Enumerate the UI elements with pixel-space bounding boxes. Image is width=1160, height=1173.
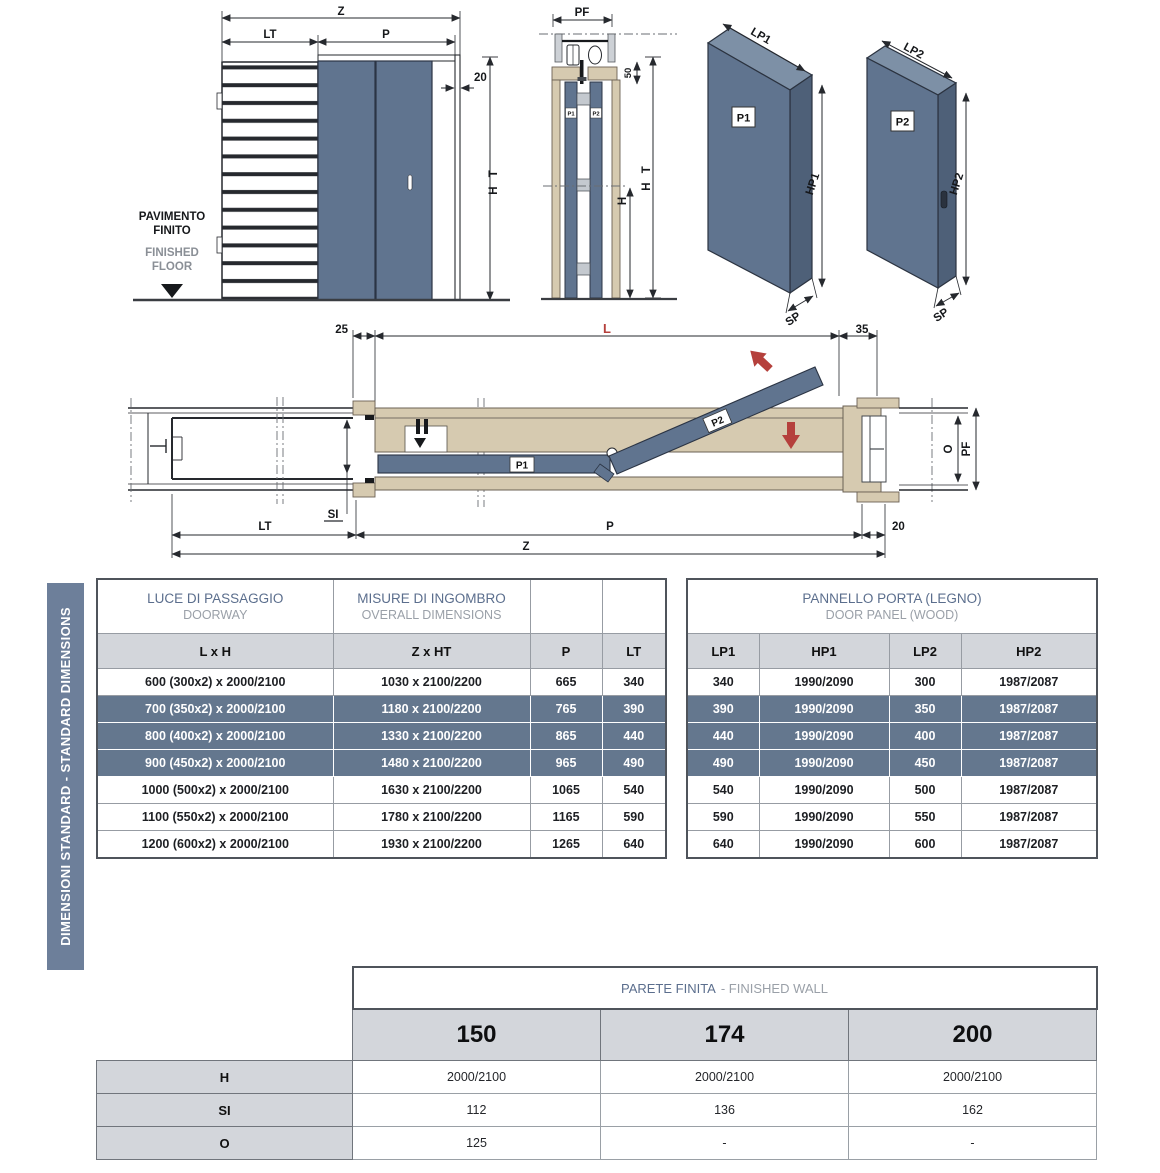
floor-level-marker xyxy=(161,284,183,298)
cell: 1000 (500x2) x 2000/2100 xyxy=(97,777,333,804)
wall-title-en: - FINISHED WALL xyxy=(721,981,828,996)
cell: 1180 x 2100/2200 xyxy=(333,696,530,723)
section-view-drawing: PF 50 P1 P2 H H T xyxy=(535,5,690,307)
dim-label-pf: PF xyxy=(961,442,973,457)
dim-label-h: H xyxy=(617,197,629,205)
dim-label-ht: H T xyxy=(488,167,500,195)
dim-line-sp xyxy=(788,296,813,311)
cell: 1990/2090 xyxy=(759,669,889,696)
panel-p1-plan xyxy=(378,455,610,473)
wall-col-header: 150 xyxy=(353,1009,601,1061)
doorway-table: LUCE DI PASSAGGIO DOORWAY MISURE DI INGO… xyxy=(96,578,667,859)
door-panel-left xyxy=(318,61,375,300)
wall-col-header: 200 xyxy=(849,1009,1097,1061)
panel-handle xyxy=(941,191,947,208)
extension-line xyxy=(812,278,817,298)
table-row: 5901990/20905501987/2087 xyxy=(687,804,1097,831)
cell: 1330 x 2100/2200 xyxy=(333,723,530,750)
door-panel-right xyxy=(376,61,432,300)
hinge xyxy=(577,263,590,275)
cell: 540 xyxy=(602,777,666,804)
wall-table-title: PARETE FINITA- FINISHED WALL xyxy=(353,967,1097,1009)
cell: 1065 xyxy=(530,777,602,804)
cell: 490 xyxy=(602,750,666,777)
panel1-tag-label: P1 xyxy=(567,112,575,118)
table-row: 800 (400x2) x 2000/21001330 x 2100/22008… xyxy=(97,723,666,750)
table-row: 5401990/20905001987/2087 xyxy=(687,777,1097,804)
extension-line xyxy=(956,276,961,295)
cassette-end-cap xyxy=(353,401,375,415)
group-title-it: LUCE DI PASSAGGIO xyxy=(98,590,333,607)
cell: 600 (300x2) x 2000/2100 xyxy=(97,669,333,696)
panel-p2-drawing: P2 LP2 HP2 SP xyxy=(855,25,1015,325)
table-row: 1100 (550x2) x 2000/21001780 x 2100/2200… xyxy=(97,804,666,831)
wall-title-it: PARETE FINITA xyxy=(621,981,716,996)
cell: 900 (450x2) x 2000/2100 xyxy=(97,750,333,777)
cell: 640 xyxy=(602,831,666,859)
dim-label-lt: LT xyxy=(258,521,271,533)
overall-group-header: MISURE DI INGOMBRO OVERALL DIMENSIONS xyxy=(333,579,530,634)
panel-p1-tag-label: P1 xyxy=(516,461,529,472)
cell: 1630 x 2100/2200 xyxy=(333,777,530,804)
cell: 340 xyxy=(687,669,759,696)
group-title-en: DOORWAY xyxy=(98,607,333,623)
cell: 450 xyxy=(889,750,961,777)
cassette-end-cap xyxy=(353,483,375,497)
track-pin xyxy=(416,419,420,434)
panel-label: P1 xyxy=(737,113,750,125)
cell: 1987/2087 xyxy=(961,723,1097,750)
panel2-tag-label: P2 xyxy=(592,112,599,118)
rough-wall xyxy=(608,34,615,62)
table-row: 900 (450x2) x 2000/21001480 x 2100/22009… xyxy=(97,750,666,777)
arrow-open-icon xyxy=(744,344,776,376)
cap-hook xyxy=(365,478,374,483)
rough-wall xyxy=(555,34,562,62)
table-row: 1000 (500x2) x 2000/21001630 x 2100/2200… xyxy=(97,777,666,804)
empty-header-cell xyxy=(602,579,666,634)
panel-front-face xyxy=(867,58,938,288)
cell: 1990/2090 xyxy=(759,777,889,804)
row-label: H xyxy=(97,1061,353,1094)
dim-label-20: 20 xyxy=(892,521,905,533)
col-header: L x H xyxy=(97,634,333,669)
top-track xyxy=(318,55,460,61)
cell: 590 xyxy=(602,804,666,831)
col-header: P xyxy=(530,634,602,669)
group-title-it: PANNELLO PORTA (LEGNO) xyxy=(688,590,1096,607)
col-header: LT xyxy=(602,634,666,669)
table-row: 1200 (600x2) x 2000/21001930 x 2100/2200… xyxy=(97,831,666,859)
dim-label-o: O xyxy=(943,444,955,453)
track-pin xyxy=(424,419,428,434)
col-header: Z x HT xyxy=(333,634,530,669)
group-title-en: DOOR PANEL (WOOD) xyxy=(688,607,1096,623)
cell: 2000/2100 xyxy=(849,1061,1097,1094)
cell: 2000/2100 xyxy=(601,1061,849,1094)
door-handle xyxy=(408,175,412,190)
dim-label-25: 25 xyxy=(335,324,348,336)
dim-label-si: SI xyxy=(328,509,339,521)
floor-label-en: FINISHED xyxy=(145,247,199,259)
dim-label-20: 20 xyxy=(474,72,487,84)
cell: 1780 x 2100/2200 xyxy=(333,804,530,831)
floor-label-it: FINITO xyxy=(153,225,191,237)
blank-cell xyxy=(97,1009,353,1061)
cell: 1990/2090 xyxy=(759,723,889,750)
cell: 1990/2090 xyxy=(759,696,889,723)
cell: 700 (350x2) x 2000/2100 xyxy=(97,696,333,723)
col-header: LP2 xyxy=(889,634,961,669)
doorway-group-header: LUCE DI PASSAGGIO DOORWAY xyxy=(97,579,333,634)
cell: 1990/2090 xyxy=(759,750,889,777)
side-jamb xyxy=(612,80,620,298)
dim-label-p: P xyxy=(382,29,390,41)
cell: 1987/2087 xyxy=(961,750,1097,777)
row-label: O xyxy=(97,1127,353,1160)
group-title-it: MISURE DI INGOMBRO xyxy=(334,590,530,607)
cell: 112 xyxy=(353,1094,601,1127)
empty-header-cell xyxy=(530,579,602,634)
dim-label-z: Z xyxy=(337,6,344,18)
roller-wheel xyxy=(589,46,602,64)
hanger-nut xyxy=(578,77,587,81)
cell: 400 xyxy=(889,723,961,750)
frame-tab xyxy=(217,93,222,109)
cell: 2000/2100 xyxy=(353,1061,601,1094)
cell: 1987/2087 xyxy=(961,696,1097,723)
cell: 350 xyxy=(889,696,961,723)
cell: 640 xyxy=(687,831,759,859)
cell: 1165 xyxy=(530,804,602,831)
cell: 965 xyxy=(530,750,602,777)
table-row: H 2000/2100 2000/2100 2000/2100 xyxy=(97,1061,1097,1094)
table-row: 3901990/20903501987/2087 xyxy=(687,696,1097,723)
dim-line-sp xyxy=(936,293,959,306)
cell: 1987/2087 xyxy=(961,831,1097,859)
cell: - xyxy=(849,1127,1097,1160)
cell: 865 xyxy=(530,723,602,750)
pocket-frame-lattice xyxy=(222,62,318,300)
cell: 765 xyxy=(530,696,602,723)
cap-hook xyxy=(365,415,374,420)
cell: 340 xyxy=(602,669,666,696)
cell: 550 xyxy=(889,804,961,831)
dim-label-pf: PF xyxy=(575,7,590,19)
table-row: O 125 - - xyxy=(97,1127,1097,1160)
side-jamb xyxy=(552,80,560,298)
cell: 1030 x 2100/2200 xyxy=(333,669,530,696)
dim-label-35: 35 xyxy=(856,324,869,336)
col-header: LP1 xyxy=(687,634,759,669)
group-title-en: OVERALL DIMENSIONS xyxy=(334,607,530,623)
cell: 440 xyxy=(687,723,759,750)
cell: 162 xyxy=(849,1094,1097,1127)
dim-label-p: P xyxy=(606,521,614,533)
cassette-walls xyxy=(128,408,353,490)
dim-label-z: Z xyxy=(522,541,529,553)
dim-label-l: L xyxy=(603,322,611,336)
wall-edge xyxy=(455,55,460,300)
section-banner-label: DIMENSIONI STANDARD - STANDARD DIMENSION… xyxy=(58,607,73,946)
table-row: 4401990/20904001987/2087 xyxy=(687,723,1097,750)
panel-label: P2 xyxy=(896,117,909,129)
blank-cell xyxy=(97,967,353,1009)
table-row: 4901990/20904501987/2087 xyxy=(687,750,1097,777)
cell: 1100 (550x2) x 2000/2100 xyxy=(97,804,333,831)
hinge xyxy=(577,93,590,105)
table-row: 600 (300x2) x 2000/21001030 x 2100/22006… xyxy=(97,669,666,696)
cell: 440 xyxy=(602,723,666,750)
cell: 1930 x 2100/2200 xyxy=(333,831,530,859)
cell: 1200 (600x2) x 2000/2100 xyxy=(97,831,333,859)
cell: 1480 x 2100/2200 xyxy=(333,750,530,777)
panel-group-header: PANNELLO PORTA (LEGNO) DOOR PANEL (WOOD) xyxy=(687,579,1097,634)
table-row: 150 174 200 xyxy=(97,1009,1097,1061)
cell: 490 xyxy=(687,750,759,777)
finished-wall-table: PARETE FINITA- FINISHED WALL 150 174 200… xyxy=(96,966,1098,1160)
floor-label-en: FLOOR xyxy=(152,261,193,273)
dim-label-lt: LT xyxy=(263,29,276,41)
jamb-cap xyxy=(857,398,899,408)
cell: 1987/2087 xyxy=(961,669,1097,696)
cell: - xyxy=(601,1127,849,1160)
floor-label-it: PAVIMENTO xyxy=(139,211,206,223)
dim-label-50: 50 xyxy=(623,68,634,79)
door-panel-table: PANNELLO PORTA (LEGNO) DOOR PANEL (WOOD)… xyxy=(686,578,1098,859)
cell: 125 xyxy=(353,1127,601,1160)
col-header: HP1 xyxy=(759,634,889,669)
jamb-cap xyxy=(857,492,899,502)
cell: 1987/2087 xyxy=(961,804,1097,831)
plan-view-drawing: 25 L 35 P1 P2 xyxy=(120,322,990,567)
cell: 500 xyxy=(889,777,961,804)
lintel-block xyxy=(588,67,617,80)
cell: 300 xyxy=(889,669,961,696)
table-row: 3401990/20903001987/2087 xyxy=(687,669,1097,696)
front-elevation-drawing: Z LT P 20 H T PAVIMENTO FINITO FINISHED … xyxy=(125,5,520,315)
hinge xyxy=(577,179,590,191)
panel-p1-drawing: P1 LP1 HP1 SP xyxy=(695,15,865,330)
cell: 390 xyxy=(687,696,759,723)
cell: 600 xyxy=(889,831,961,859)
cell: 590 xyxy=(687,804,759,831)
cell: 800 (400x2) x 2000/2100 xyxy=(97,723,333,750)
cell: 665 xyxy=(530,669,602,696)
table-row: SI 112 136 162 xyxy=(97,1094,1097,1127)
cell: 540 xyxy=(687,777,759,804)
cell: 390 xyxy=(602,696,666,723)
table-row: PARETE FINITA- FINISHED WALL xyxy=(97,967,1097,1009)
table-row: 6401990/20906001987/2087 xyxy=(687,831,1097,859)
cell: 1990/2090 xyxy=(759,804,889,831)
table-row: 700 (350x2) x 2000/21001180 x 2100/22007… xyxy=(97,696,666,723)
lintel-block xyxy=(552,67,580,80)
cell: 1265 xyxy=(530,831,602,859)
col-header: HP2 xyxy=(961,634,1097,669)
row-label: SI xyxy=(97,1094,353,1127)
frame-tab xyxy=(217,237,222,253)
dim-label-ht: H T xyxy=(641,163,653,191)
cell: 1990/2090 xyxy=(759,831,889,859)
cell: 1987/2087 xyxy=(961,777,1097,804)
wall-col-header: 174 xyxy=(601,1009,849,1061)
cell: 136 xyxy=(601,1094,849,1127)
section-banner: DIMENSIONI STANDARD - STANDARD DIMENSION… xyxy=(47,583,84,970)
